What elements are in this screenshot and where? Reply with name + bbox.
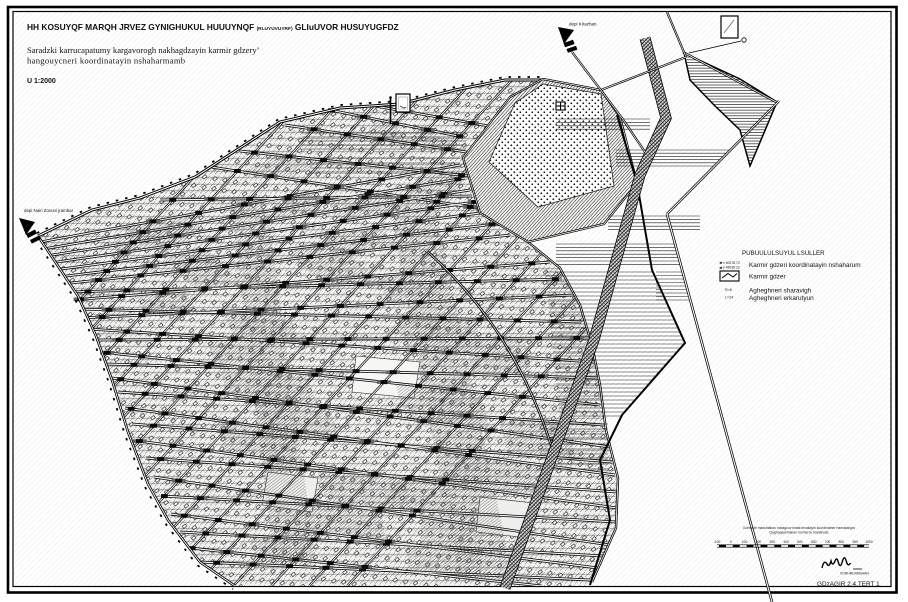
svg-text:x 40078.72: x 40078.72 (723, 261, 740, 265)
svg-text:GDzAGIR 2.4.TERT 1: GDzAGIR 2.4.TERT 1 (817, 581, 880, 588)
svg-text:700: 700 (825, 540, 831, 544)
svg-text:R=6: R=6 (725, 288, 732, 292)
svg-text:400: 400 (783, 540, 789, 544)
svg-text:Agheghneri sharavigh: Agheghneri sharavigh (749, 288, 812, 295)
svg-text:depi Kirazhan: depi Kirazhan (569, 22, 597, 27)
svg-text:Gortsadir masshtabov naxagcov: Gortsadir masshtabov naxagcov imast texa… (743, 526, 856, 530)
svg-text:PUBUULULSUYUL LSULLER: PUBUULULSUYUL LSULLER (742, 250, 825, 257)
svg-text:depi Nairi Zovuni jrambar: depi Nairi Zovuni jrambar (24, 208, 74, 213)
svg-text:U 1:2000: U 1:2000 (27, 78, 56, 85)
svg-text:Agheghneri erkarutyun: Agheghneri erkarutyun (749, 295, 814, 302)
svg-text:hangouycneri koordinatayin nsh: hangouycneri koordinatayin nshaharmamb (27, 56, 185, 66)
svg-text:Qaghaqashinakan normerov hasta: Qaghaqashinakan normerov hastatvats (769, 531, 828, 535)
svg-text:Saradzki karrucapatumy kargavo: Saradzki karrucapatumy kargavorogh nakha… (27, 45, 260, 55)
svg-text:600: 600 (811, 540, 817, 544)
svg-text:Karmir gdzer: Karmir gdzer (749, 274, 786, 281)
svg-text:-100: -100 (714, 540, 721, 544)
svg-text:100: 100 (742, 540, 748, 544)
svg-text:200: 200 (756, 540, 762, 544)
svg-text:Karmir gdzeri koordinatayin ns: Karmir gdzeri koordinatayin nshaharum (749, 262, 861, 269)
svg-text:300: 300 (770, 540, 776, 544)
svg-text:HH KOSUYQF MARQH JRVEZ GYNIGHU: HH KOSUYQF MARQH JRVEZ GYNIGHUKUL HUUUYN… (27, 22, 399, 32)
svg-text:1000: 1000 (865, 540, 873, 544)
svg-text:XORHRDANSHAN: XORHRDANSHAN (840, 572, 869, 576)
svg-text:900: 900 (852, 540, 858, 544)
svg-text:800: 800 (839, 540, 845, 544)
svg-text:y 45039.22: y 45039.22 (723, 266, 740, 270)
svg-text:500: 500 (797, 540, 803, 544)
svg-text:L=24: L=24 (725, 296, 733, 300)
svg-text:0: 0 (730, 540, 732, 544)
